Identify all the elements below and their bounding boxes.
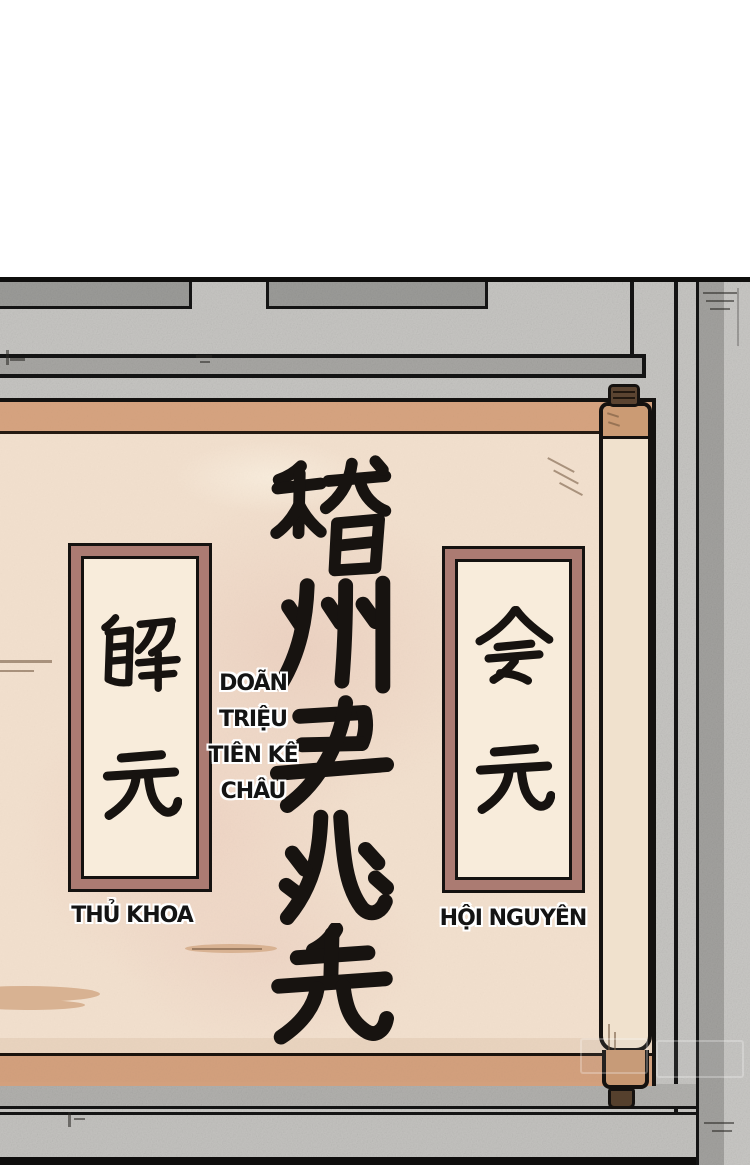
hanzi-jie-icon [100,612,182,694]
wall-scratch [200,361,210,363]
scroll-roller [599,402,652,1052]
wall-scratch [74,1118,85,1120]
paper-crease [547,457,574,473]
roller-bottom-knob [608,1088,635,1109]
wall-scratch [710,308,730,310]
floor-band-lower [0,1115,696,1157]
blank-top-margin [0,0,750,277]
hanzi-ji-icon [270,455,394,579]
translation-line: TRIỆU [181,702,325,738]
paper-crease [559,482,583,496]
wall-scratch [704,1122,734,1124]
wall-scratch [68,1112,71,1127]
caption-thu-khoa: THỦ KHOA [42,903,222,928]
translation-note: DOÃN TRIỆU TIÊN KÊ CHÂU [181,666,325,810]
hanzi-yuan-right-icon [473,734,555,816]
hanzi-hui-icon [473,606,555,688]
floor-band-upper [0,1084,696,1108]
floor-line-1 [0,1106,696,1109]
scroll-bottom-band [0,1056,652,1086]
translation-line: DOÃN [181,666,325,702]
ceiling-panel-left [0,282,192,309]
hanzi-yuan-left-icon [100,740,182,822]
wall-scratch [706,300,734,302]
translation-line: CHÂU [181,774,325,810]
watermark [580,1032,750,1084]
wall-corner-line [630,282,634,358]
paper-smudge-line [192,948,262,950]
paper-crease [0,660,52,663]
wall-scratch [737,288,739,346]
wall-scratch [703,292,737,294]
wall-scratch [196,355,212,358]
paper-crease [553,470,579,485]
hanzi-zhao-icon [270,806,394,930]
paper-crease [0,670,34,672]
placard-right [442,546,585,893]
scroll-top-band [0,402,652,434]
wall-scratch [6,350,9,365]
translation-line: TIÊN KÊ [181,738,325,774]
hanzi-xian-icon [270,923,394,1047]
wall-scratch [712,1130,732,1132]
ceiling-panel-mid [266,282,488,309]
comic-panel: DOÃN TRIỆU TIÊN KÊ CHÂU THỦ KHOA HỘI NGU… [0,0,750,1165]
wall-beam [0,354,646,378]
caption-hoi-nguyen: HỘI NGUYÊN [418,906,608,931]
roller-top-knob [608,384,640,407]
wall-scratch [10,358,25,361]
floor-black-bar [0,1157,696,1165]
